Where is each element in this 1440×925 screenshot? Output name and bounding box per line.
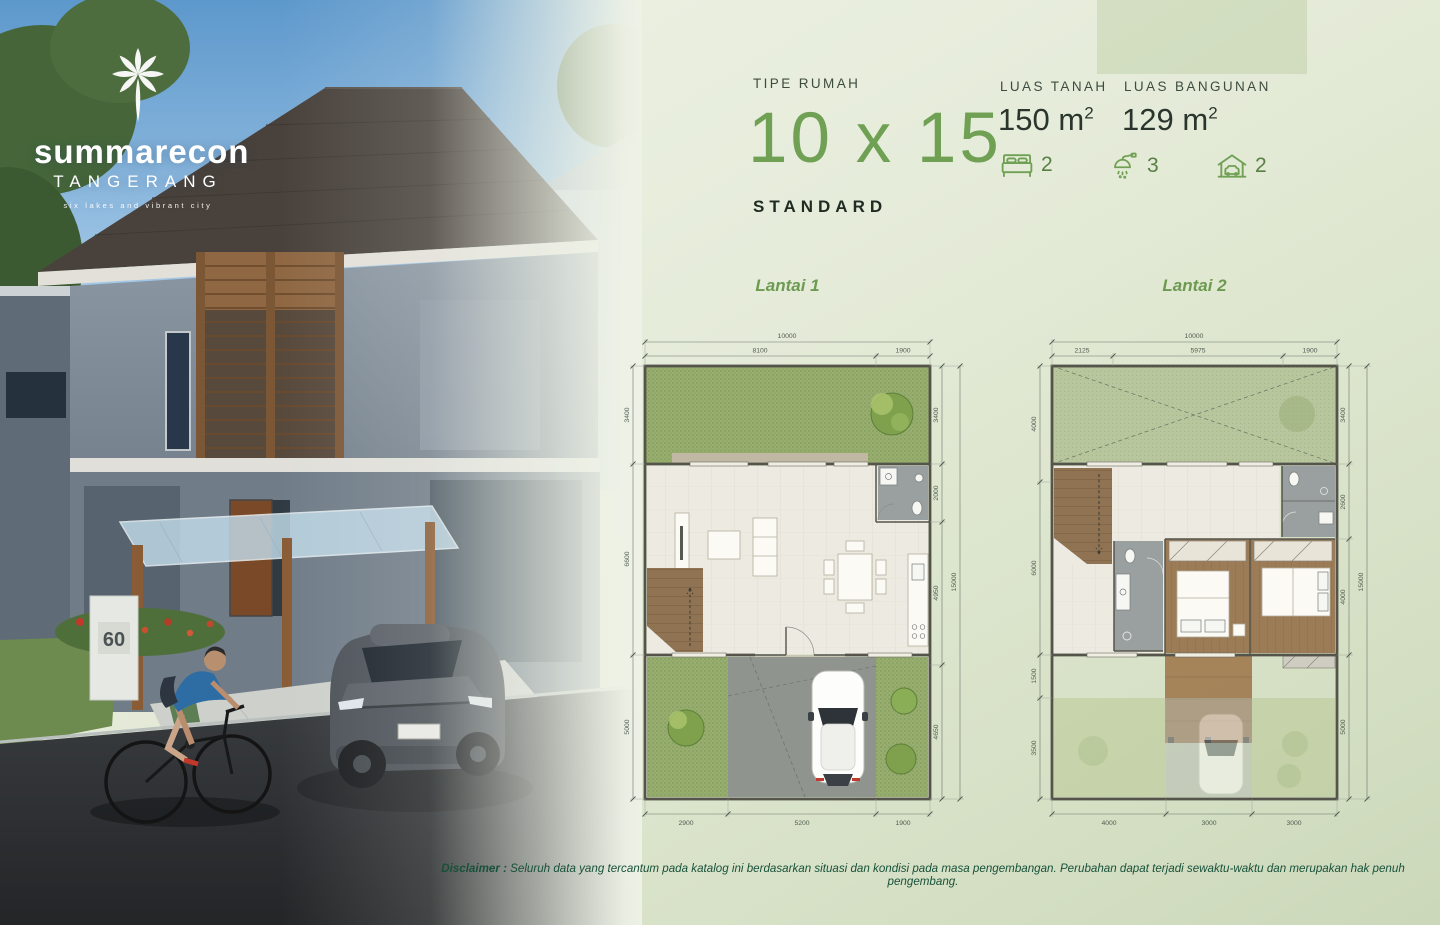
svg-text:1900: 1900: [895, 820, 910, 827]
ground-level-faded: [1054, 698, 1335, 797]
building-area-label: LUAS BANGUNAN: [1124, 79, 1271, 94]
toilet: [1289, 472, 1299, 486]
svg-text:15000: 15000: [1358, 572, 1365, 591]
license-plate: [398, 724, 440, 739]
brand-name: summarecon: [34, 135, 242, 168]
dining-table: [838, 554, 872, 600]
house-photo: 60: [0, 0, 640, 925]
svg-text:2900: 2900: [678, 820, 693, 827]
svg-text:10000: 10000: [778, 333, 797, 340]
floor-plan-lantai1: 10000 8100 1900 2900 5200 1900 3400 6600…: [620, 326, 980, 831]
variant-label: STANDARD: [753, 197, 887, 217]
shower-icon: [1110, 151, 1140, 181]
garden-tree: [871, 393, 913, 435]
floor-plan-lantai2: 10000 2125 5975 1900 4000 3000 3000 4000…: [1027, 326, 1387, 831]
building-area-value: 129 m2: [1122, 102, 1218, 138]
kitchen-sink: [912, 564, 924, 580]
ac-ledge: [1283, 656, 1335, 668]
svg-text:4950: 4950: [933, 585, 940, 600]
lantai1-title: Lantai 1: [645, 276, 930, 296]
svg-text:6000: 6000: [1031, 560, 1038, 575]
sofa: [753, 518, 777, 576]
svg-text:3000: 3000: [1201, 820, 1216, 827]
svg-text:4650: 4650: [933, 724, 940, 739]
svg-text:2000: 2000: [933, 485, 940, 500]
svg-text:3400: 3400: [933, 407, 940, 422]
svg-text:5000: 5000: [1340, 719, 1347, 734]
land-area-value: 150 m2: [998, 102, 1094, 138]
disclaimer: Disclaimer : Seluruh data yang tercantum…: [420, 862, 1426, 888]
svg-text:3500: 3500: [1031, 740, 1038, 755]
svg-text:2600: 2600: [1340, 494, 1347, 509]
lantai2-title: Lantai 2: [1052, 276, 1337, 296]
vanity: [1116, 574, 1130, 610]
basin: [1319, 512, 1333, 524]
bed-2: [1262, 568, 1330, 616]
nightstand: [1233, 624, 1245, 636]
svg-text:5200: 5200: [794, 820, 809, 827]
svg-text:6600: 6600: [624, 551, 631, 566]
bathroom-1: [878, 466, 928, 520]
stairs: [1054, 468, 1112, 564]
bed-icon: [1000, 151, 1034, 179]
svg-text:3400: 3400: [1340, 407, 1347, 422]
svg-text:10000: 10000: [1185, 333, 1204, 340]
coffee-table: [708, 531, 740, 559]
sink: [915, 474, 923, 482]
type-label: TIPE RUMAH: [753, 76, 860, 91]
disclaimer-text: Seluruh data yang tercantum pada katalog…: [510, 862, 1405, 888]
toilet: [912, 501, 922, 515]
summarecon-flower-icon: [102, 34, 174, 126]
svg-text:4000: 4000: [1340, 589, 1347, 604]
svg-text:1900: 1900: [1302, 348, 1317, 355]
svg-text:3000: 3000: [1286, 820, 1301, 827]
side-window: [6, 372, 66, 418]
svg-text:5000: 5000: [624, 719, 631, 734]
svg-text:2125: 2125: [1074, 348, 1089, 355]
bathroom-3: [1114, 541, 1163, 651]
bathroom-count: 3: [1110, 151, 1159, 181]
catalog-page: 60: [0, 0, 1440, 925]
carport-icon: [1216, 151, 1248, 181]
bedroom-count: 2: [1000, 151, 1053, 179]
svg-text:15000: 15000: [951, 572, 958, 591]
toilet: [1125, 549, 1135, 563]
brand-city: TANGERANG: [34, 172, 242, 192]
brand-tagline: six lakes and vibrant city: [34, 201, 242, 210]
tall-window: [166, 332, 190, 450]
svg-text:8100: 8100: [752, 348, 767, 355]
svg-text:5975: 5975: [1190, 348, 1205, 355]
bathroom-2: [1282, 466, 1335, 537]
car-top-view: [808, 671, 868, 786]
house-number: 60: [103, 629, 125, 651]
land-area-label: LUAS TANAH: [1000, 79, 1108, 94]
wood-slat-screen: [196, 252, 344, 458]
stairs: [647, 568, 703, 652]
svg-text:4000: 4000: [1031, 416, 1038, 431]
brand-logo: summarecon TANGERANG six lakes and vibra…: [34, 34, 242, 210]
house-type-value: 10 x 15: [748, 96, 1002, 181]
svg-text:3400: 3400: [624, 407, 631, 422]
kitchen: [908, 554, 928, 646]
decorative-block: [1097, 0, 1307, 74]
tree-shadow: [1279, 396, 1315, 432]
svg-text:4000: 4000: [1101, 820, 1116, 827]
front-garden-right: [876, 657, 928, 797]
carport-count: 2: [1216, 151, 1267, 181]
disclaimer-label: Disclaimer :: [441, 862, 507, 875]
svg-text:1500: 1500: [1031, 668, 1038, 683]
svg-text:1900: 1900: [895, 348, 910, 355]
